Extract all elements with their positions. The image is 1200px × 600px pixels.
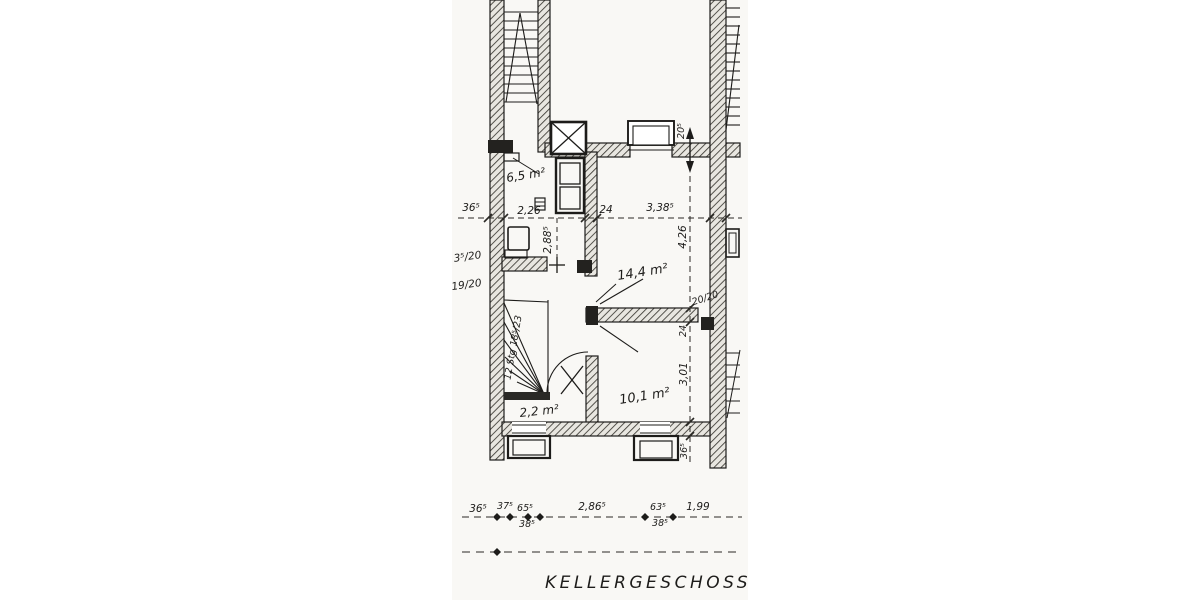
pier-20x20 [701,317,714,330]
top-window [628,121,674,150]
chimney-shaft [551,122,586,154]
plan-title: KELLERGESCHOSS [545,573,751,593]
chain-38b: 38⁵ [652,518,668,529]
chain-38a: 38⁵ [519,519,535,530]
dim-wall-24-v: 24 [678,325,689,337]
chain-286: 2,86⁵ [578,501,606,513]
dim-wall-24: 24 [599,204,612,216]
drawing-sheet: 6,5 m² 14,4 m² 10,1 m² 2,2 m² 2,26 24 3,… [0,0,1200,600]
dim-sill: 36⁵ [679,443,690,459]
partition-wall [586,308,698,322]
top-wall-right-segment [672,143,740,157]
dim-room-width: 3,38⁵ [646,202,674,214]
entry-block [488,140,513,153]
door-post-block [577,260,592,273]
floor-plan-canvas: 6,5 m² 14,4 m² 10,1 m² 2,2 m² 2,26 24 3,… [0,0,1200,600]
dim-hall-width: 2,26 [517,205,541,217]
partition-end-cap [586,306,598,325]
stair-right-wall [538,0,550,152]
dim-room-depth: 4,26 [677,225,689,249]
dim-lintel: 20⁵ [676,123,687,139]
bench-block [502,257,547,271]
left-exterior-wall [490,0,504,460]
interior-wall-lower [586,356,598,426]
chain-37: 37⁵ [497,501,513,512]
dim-left-36: 36⁵ [462,202,480,214]
chain-199: 1,99 [686,501,710,513]
chain-36: 36⁵ [469,503,487,515]
party-wall [710,0,726,468]
stair-landing-sill [504,392,550,400]
interior-wall-upper [585,152,597,276]
dim-hall-depth: 2,88⁵ [542,226,554,254]
dim-back-depth: 3,01 [678,362,690,385]
chain-63: 63⁵ [650,502,666,513]
chain-65: 65⁵ [517,503,533,514]
